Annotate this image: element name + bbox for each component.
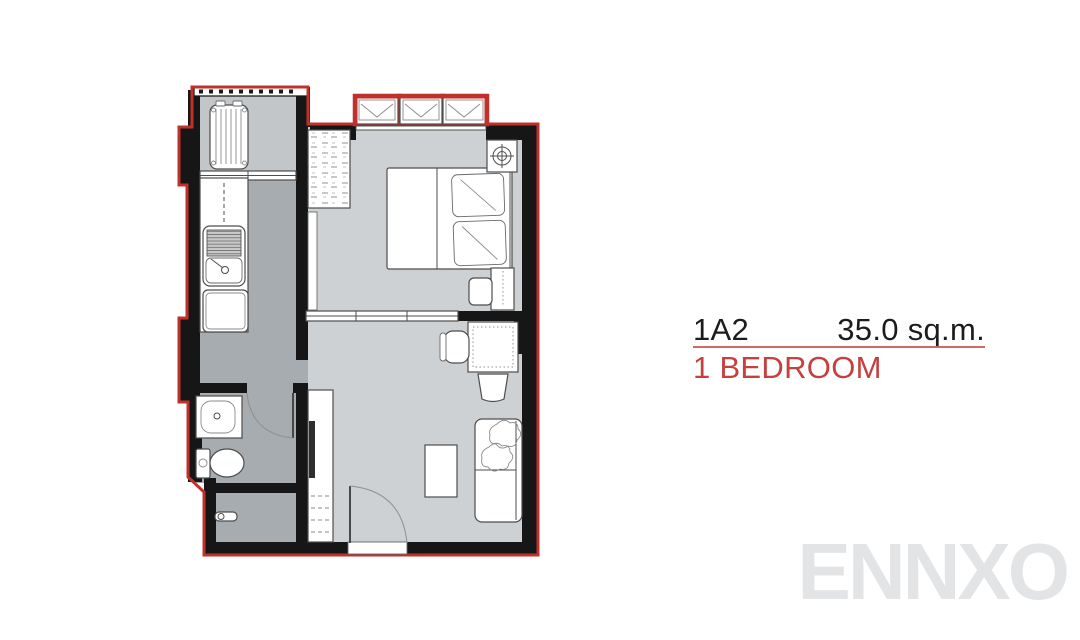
window-sill (356, 126, 486, 130)
wardrobe (308, 130, 350, 208)
bedside-stool (469, 278, 492, 305)
toilet (196, 449, 244, 478)
unit-area: 35.0 sq.m. (837, 314, 985, 345)
sofa (475, 419, 522, 522)
stool (478, 374, 508, 402)
built-in-panel (308, 212, 317, 310)
watermark: ENNXO (798, 532, 1068, 612)
kitchen-opening-floor (296, 360, 308, 385)
desk (468, 322, 518, 372)
door-handle (215, 512, 237, 521)
unit-type-label: 1 BEDROOM (693, 352, 882, 383)
ceiling-fan-symbol (487, 140, 517, 172)
under-counter-appliance (203, 290, 248, 332)
unit-label-row: 1A2 35.0 sq.m. (693, 314, 985, 345)
desk-chair (440, 331, 469, 363)
coffee-table (425, 445, 457, 497)
washbasin (196, 396, 242, 438)
ac-condenser-unit (210, 101, 248, 169)
tv (309, 421, 315, 478)
unit-label-divider (693, 346, 985, 348)
bathroom-door-opening (247, 383, 293, 393)
tv-console (308, 390, 333, 542)
floorplan-page: 1A2 35.0 sq.m. 1 BEDROOM ENNXO (0, 0, 1080, 640)
awning-windows (354, 95, 488, 130)
double-bed (387, 168, 512, 269)
unit-code: 1A2 (693, 314, 749, 345)
sliding-partition (306, 311, 458, 321)
kitchen-sink (203, 226, 245, 286)
